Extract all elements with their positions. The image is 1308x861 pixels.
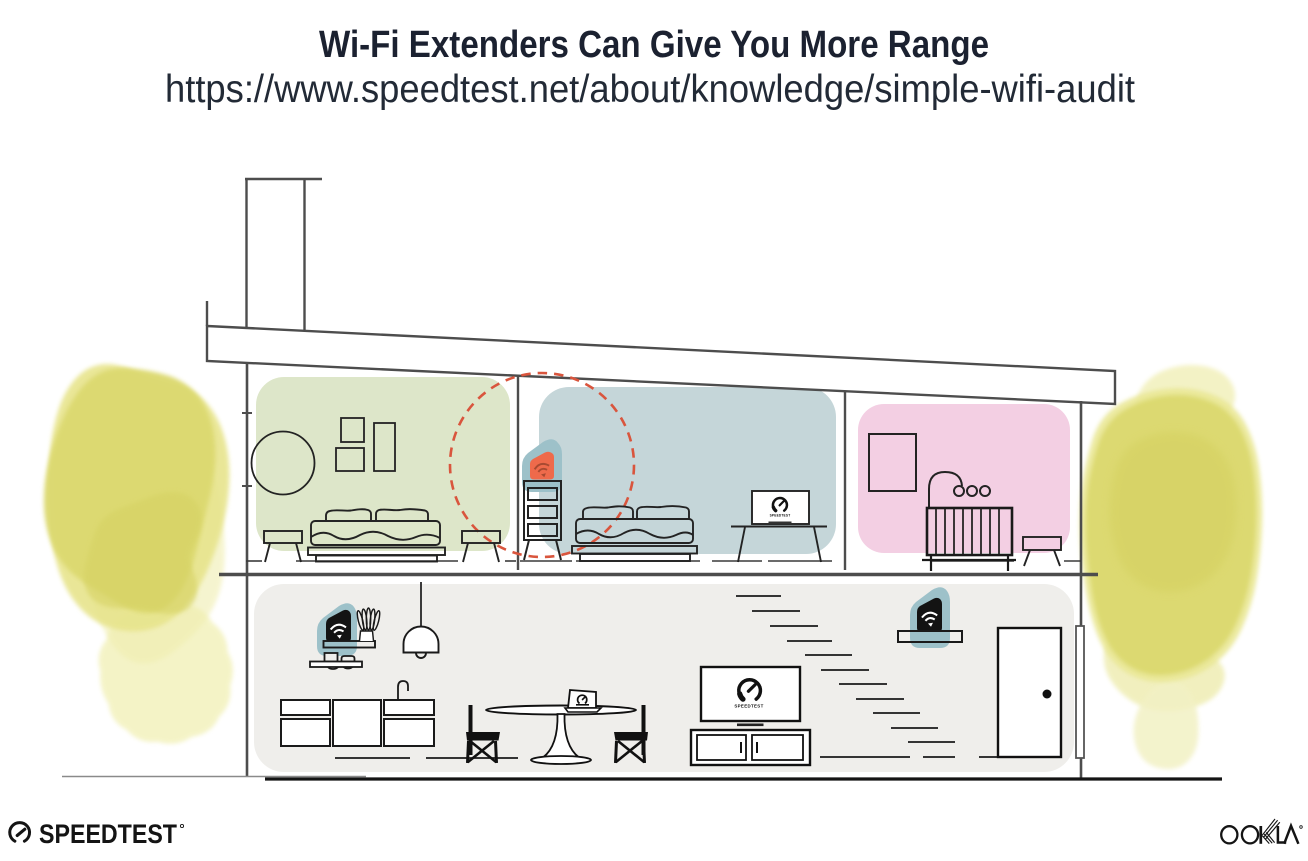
svg-text:SPEEDTEST: SPEEDTEST [770,513,791,517]
svg-text:SPEEDTEST: SPEEDTEST [39,819,177,849]
svg-text:https://www.speedtest.net/abou: https://www.speedtest.net/about/knowledg… [165,68,1135,111]
svg-text:SPEEDTEST: SPEEDTEST [734,704,763,709]
svg-text:Wi-Fi Extenders Can Give You M: Wi-Fi Extenders Can Give You More Range [319,24,989,66]
